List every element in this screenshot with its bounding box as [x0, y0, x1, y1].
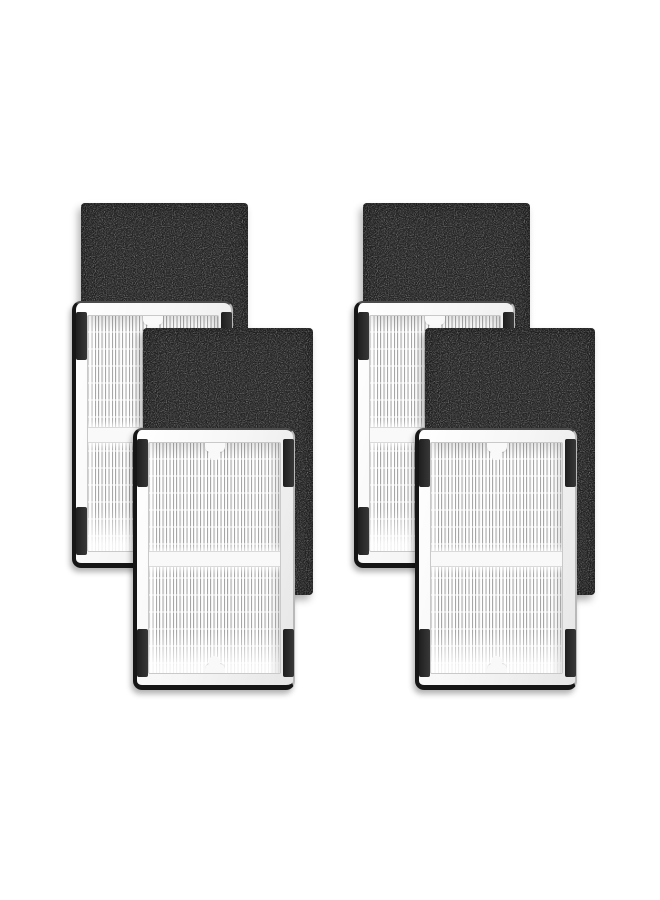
corner-clip-top-left-icon — [419, 439, 430, 487]
corner-clip-top-right-icon — [283, 439, 294, 487]
notch-bump — [209, 451, 220, 460]
frame-notch-top — [143, 315, 163, 325]
product-photo — [0, 0, 660, 900]
frame-notch-top — [425, 315, 445, 325]
notch-bump — [209, 656, 220, 665]
pleated-media-window — [148, 442, 281, 674]
notch-bump — [491, 451, 502, 460]
pleated-media-window — [430, 442, 563, 674]
frame-center-rib — [149, 551, 280, 567]
corner-clip-top-left-icon — [137, 439, 148, 487]
hepa-filter-front-left — [133, 428, 295, 690]
frame-notch-bottom — [487, 664, 507, 674]
frame-notch-bottom — [205, 664, 225, 674]
corner-clip-bottom-right-icon — [283, 629, 294, 677]
corner-clip-bottom-left-icon — [358, 507, 369, 555]
corner-clip-bottom-right-icon — [565, 629, 576, 677]
hepa-filter-face — [137, 430, 293, 685]
corner-clip-top-left-icon — [358, 312, 369, 360]
corner-clip-top-right-icon — [565, 439, 576, 487]
frame-center-rib — [431, 551, 562, 567]
frame-notch-top — [487, 442, 507, 452]
notch-bump — [491, 656, 502, 665]
corner-clip-top-left-icon — [76, 312, 87, 360]
frame-notch-top — [205, 442, 225, 452]
hepa-filter-face — [419, 430, 575, 685]
hepa-filter-front-right — [415, 428, 577, 690]
filter-set-right — [282, 0, 660, 900]
corner-clip-bottom-left-icon — [76, 507, 87, 555]
corner-clip-bottom-left-icon — [137, 629, 148, 677]
corner-clip-bottom-left-icon — [419, 629, 430, 677]
